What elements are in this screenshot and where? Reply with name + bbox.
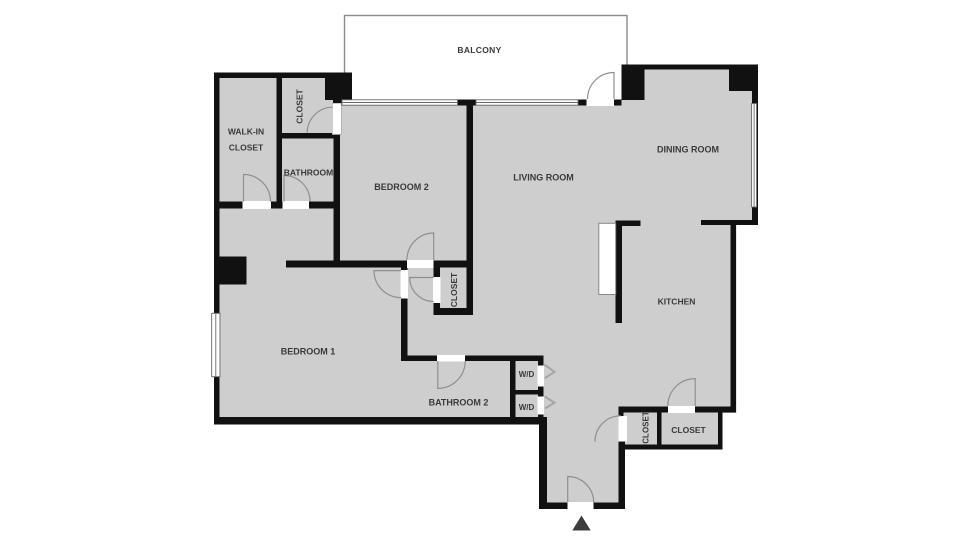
svg-text:CLOSET: CLOSET (671, 425, 706, 435)
svg-text:KITCHEN: KITCHEN (658, 297, 696, 307)
svg-text:BATHROOM 2: BATHROOM 2 (429, 398, 489, 408)
svg-text:CLOSET: CLOSET (295, 88, 305, 123)
svg-text:CLOSET: CLOSET (229, 143, 264, 153)
svg-text:BATHROOM: BATHROOM (284, 168, 333, 178)
svg-text:LIVING ROOM: LIVING ROOM (513, 173, 574, 183)
svg-text:W/D: W/D (519, 403, 535, 412)
svg-text:DINING ROOM: DINING ROOM (657, 145, 719, 155)
svg-text:CLOSET: CLOSET (642, 411, 651, 444)
svg-text:BALCONY: BALCONY (457, 45, 501, 55)
svg-text:WALK-IN: WALK-IN (228, 127, 264, 137)
svg-text:BEDROOM 2: BEDROOM 2 (374, 182, 429, 192)
svg-text:W/D: W/D (519, 370, 535, 379)
svg-text:CLOSET: CLOSET (449, 272, 459, 307)
svg-text:BEDROOM 1: BEDROOM 1 (281, 347, 336, 357)
